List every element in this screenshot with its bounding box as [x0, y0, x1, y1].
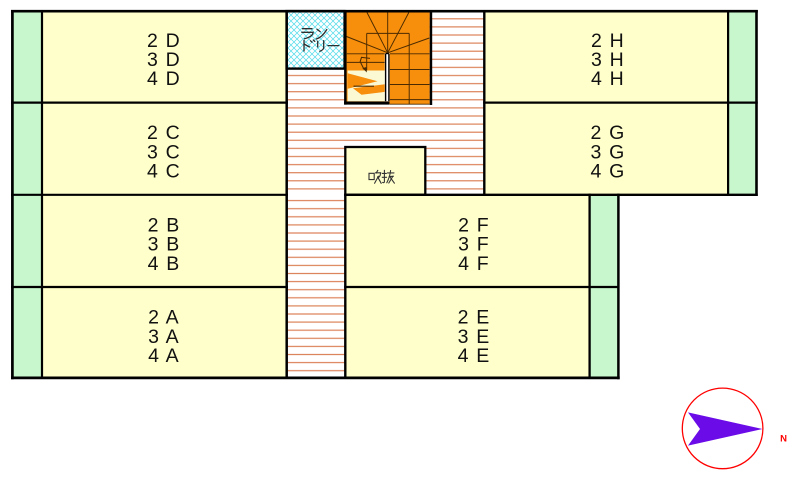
svg-text:4 G: 4 G	[590, 161, 625, 183]
svg-text:4 C: 4 C	[147, 161, 181, 183]
svg-text:N: N	[780, 434, 787, 445]
svg-text:4 B: 4 B	[148, 253, 181, 275]
svg-text:4 F: 4 F	[458, 253, 490, 275]
svg-text:4 D: 4 D	[147, 68, 181, 90]
svg-text:4 A: 4 A	[148, 345, 180, 367]
svg-text:4 H: 4 H	[591, 68, 625, 90]
svg-text:4 E: 4 E	[458, 345, 491, 367]
